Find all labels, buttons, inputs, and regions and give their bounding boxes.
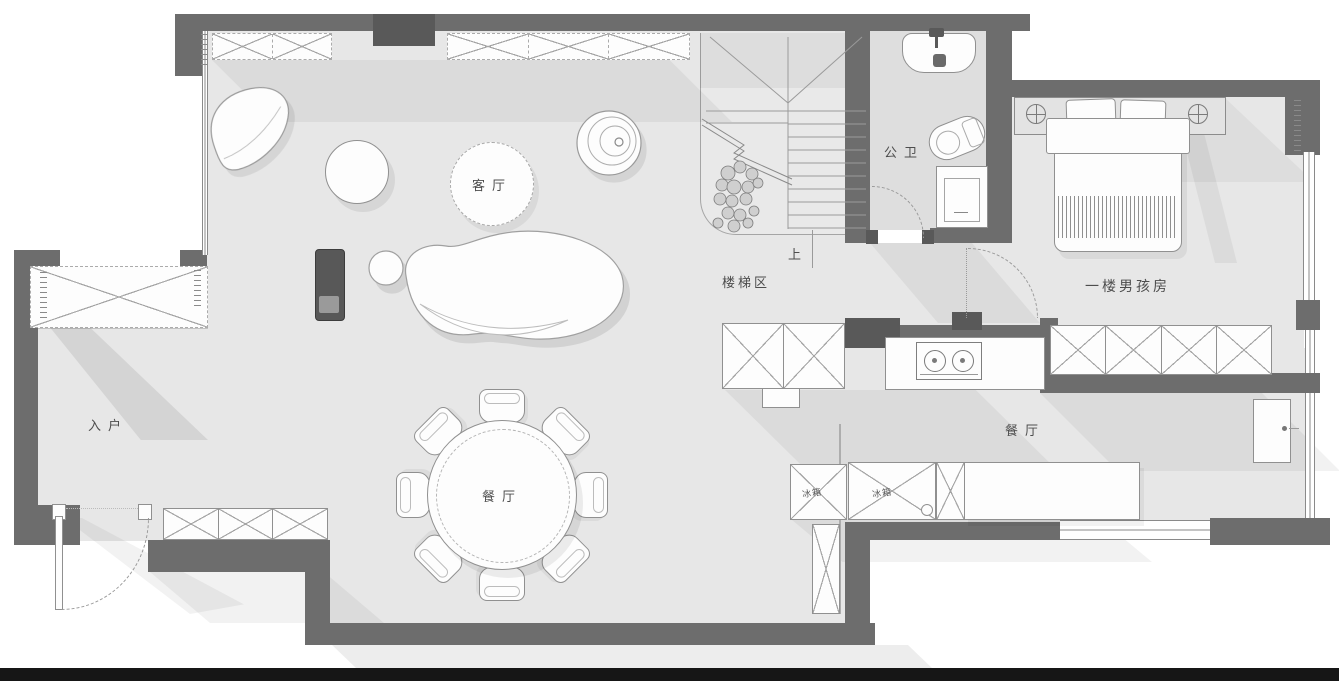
x-pattern bbox=[529, 34, 610, 59]
bedroom-door-leaf bbox=[966, 248, 969, 318]
stove-burner bbox=[924, 350, 946, 372]
shadow bbox=[332, 645, 932, 668]
dining-chair bbox=[479, 567, 525, 601]
bedside-lamp bbox=[1188, 104, 1208, 124]
bathroom-label: 公卫 bbox=[884, 142, 924, 161]
footer-bar bbox=[0, 668, 1339, 681]
dining-table-inner-edge bbox=[436, 429, 570, 563]
dining-table: 餐厅 bbox=[427, 420, 577, 570]
wall-dining-south bbox=[870, 522, 1060, 540]
x-pattern bbox=[723, 324, 784, 388]
staircase bbox=[700, 33, 868, 234]
tall-cabinet bbox=[812, 524, 840, 614]
wall-bathroom-right bbox=[986, 31, 1012, 243]
wall-se-corner bbox=[1210, 518, 1330, 545]
x-pattern bbox=[448, 34, 529, 59]
fridge-right-label: 冰箱 bbox=[871, 485, 893, 501]
counter-long bbox=[964, 462, 1140, 520]
curtain-coil bbox=[194, 270, 201, 310]
side-table bbox=[325, 140, 389, 204]
stair-up-line bbox=[812, 230, 813, 268]
x-pattern bbox=[219, 509, 274, 539]
wall-mid-step bbox=[845, 522, 870, 644]
x-pattern bbox=[1051, 326, 1106, 374]
x-pattern bbox=[273, 34, 332, 59]
x-pattern bbox=[164, 509, 219, 539]
bed-blanket-fold bbox=[1046, 118, 1190, 154]
x-pattern bbox=[31, 267, 207, 327]
window-dining-south bbox=[1060, 520, 1210, 540]
fridge-left-label: 冰箱 bbox=[801, 485, 823, 501]
dining-table-set: 餐厅 bbox=[395, 388, 610, 603]
wall-south bbox=[305, 623, 875, 645]
x-pattern bbox=[813, 525, 839, 613]
x-pattern bbox=[937, 463, 964, 519]
entry-door-swing bbox=[61, 518, 149, 610]
bedroom-wardrobe bbox=[1050, 325, 1272, 375]
floor-plan: 客厅 餐厅 bbox=[0, 0, 1339, 681]
dining-chair bbox=[479, 389, 525, 423]
column-top bbox=[373, 14, 435, 46]
shower-mark bbox=[954, 212, 968, 216]
bathroom-faucet-spout bbox=[935, 36, 938, 48]
wall-bathroom-south bbox=[930, 228, 1012, 243]
bedside-lamp bbox=[1026, 104, 1046, 124]
window-dining-east bbox=[1305, 330, 1315, 520]
wall-south-entry bbox=[148, 540, 323, 572]
curtain-coil bbox=[1294, 100, 1301, 152]
lounge-chair bbox=[198, 79, 299, 180]
living-room-label: 客厅 bbox=[472, 175, 512, 194]
counter-sink-knob bbox=[921, 504, 933, 516]
curtain-coil bbox=[201, 34, 208, 68]
floor-drain bbox=[933, 54, 946, 67]
bay-window-seat bbox=[30, 266, 208, 328]
appliance-handle-line bbox=[1289, 428, 1299, 429]
living-room-rug: 客厅 bbox=[450, 142, 534, 226]
counter-x-cell bbox=[936, 462, 965, 520]
tv-unit bbox=[315, 249, 345, 321]
kitchen-island-cabinet bbox=[722, 323, 845, 389]
wall-bedroom-south bbox=[1040, 373, 1320, 393]
dining-area-label: 餐厅 bbox=[1005, 420, 1045, 439]
x-pattern bbox=[273, 509, 327, 539]
window-bedroom-east bbox=[1303, 152, 1315, 304]
entry-door-threshold bbox=[66, 508, 138, 511]
x-pattern bbox=[784, 324, 844, 388]
x-pattern bbox=[1162, 326, 1217, 374]
wall-bedroom-ne-block bbox=[1285, 80, 1320, 155]
bathroom-sink bbox=[902, 33, 976, 73]
wall-top bbox=[175, 14, 1030, 31]
x-pattern bbox=[609, 34, 689, 59]
x-pattern bbox=[213, 34, 273, 59]
sofa bbox=[362, 224, 628, 350]
egg-chair bbox=[574, 108, 644, 178]
wall-bedroom-north bbox=[1012, 80, 1320, 97]
tv-unit-shelf bbox=[319, 296, 339, 313]
stove-knob-strip bbox=[920, 374, 978, 379]
stair-zone-label: 楼梯区 bbox=[722, 272, 770, 291]
curtain-coil bbox=[40, 272, 47, 318]
x-pattern bbox=[1106, 326, 1161, 374]
appliance-handle-dot bbox=[1282, 426, 1287, 431]
wall-cabinet-a bbox=[212, 33, 332, 60]
entry-label: 入户 bbox=[88, 415, 128, 434]
boys-room-label: 一楼男孩房 bbox=[1085, 276, 1170, 296]
dining-chair bbox=[574, 472, 608, 518]
stove-burner bbox=[952, 350, 974, 372]
kitchen-island-tab bbox=[762, 388, 800, 408]
dining-chair bbox=[396, 472, 430, 518]
stair-up-label: 上 bbox=[788, 244, 801, 263]
wall-bedroom-east-block bbox=[1296, 300, 1320, 330]
bed-blanket-stripes bbox=[1058, 196, 1178, 238]
wall-cabinet-b bbox=[447, 33, 690, 60]
x-pattern bbox=[1217, 326, 1271, 374]
shoe-cabinet bbox=[163, 508, 328, 540]
appliance-cabinet bbox=[1253, 399, 1291, 463]
